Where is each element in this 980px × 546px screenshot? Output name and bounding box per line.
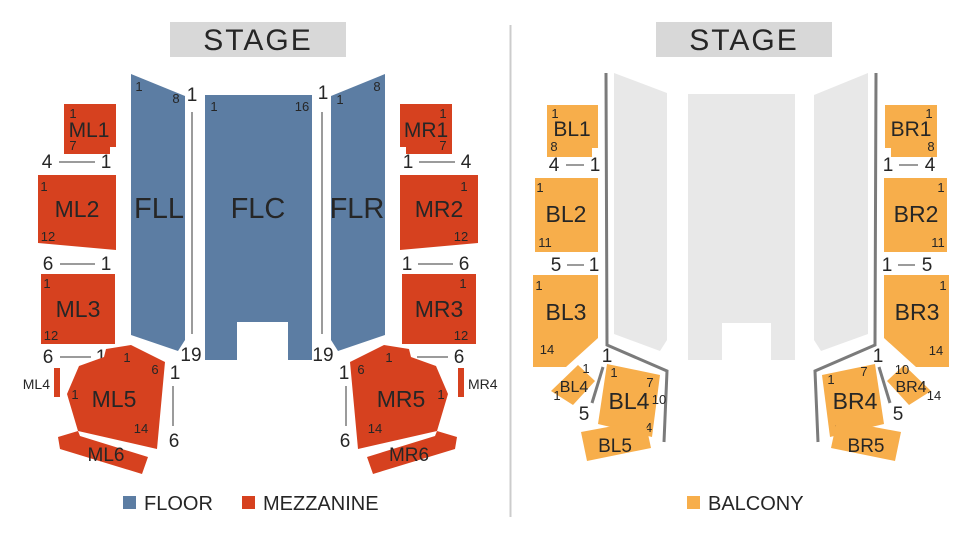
seat-map-canvas: STAGE FLL 1 8 FLC 1 16 FLR 1 8 1 19 (0, 0, 980, 546)
section-mr3-label: MR3 (415, 296, 464, 322)
mr2-seat-b: 6 (459, 254, 470, 275)
mr1-row-first: 1 (439, 106, 446, 121)
section-br1-label: BR1 (891, 118, 932, 141)
seat-range-br1: 1 4 (883, 155, 936, 176)
section-bl1-label: BL1 (553, 118, 590, 141)
seating-chart-page: STAGE FLL 1 8 FLC 1 16 FLR 1 8 1 19 (0, 0, 980, 546)
mr2-seat-a: 1 (402, 254, 413, 275)
mr5-num-right: 1 (437, 387, 444, 402)
ml1-row-first: 1 (69, 106, 76, 121)
mr5-num-top: 1 (385, 350, 392, 365)
section-ml4-label: ML4 (23, 376, 50, 392)
section-mr5[interactable]: MR5 1 6 1 14 (350, 345, 448, 449)
mr3-seat-b: 6 (454, 347, 465, 368)
seat-range-bl1: 4 1 (549, 155, 601, 176)
ml1-seat-b: 1 (101, 152, 112, 173)
bl3-row-first: 1 (535, 278, 542, 293)
section-bl4-small[interactable]: BL4 1 1 5 (551, 361, 595, 425)
ml1-row-last: 7 (69, 138, 76, 153)
section-bl5[interactable]: BL5 (581, 420, 651, 461)
bl2-seat-b: 1 (589, 255, 600, 276)
br4s-num-top: 10 (895, 362, 909, 377)
bl2-row-last: 11 (538, 235, 552, 250)
ml2-seat-a: 6 (43, 254, 54, 275)
fll-row-first: 1 (135, 79, 142, 94)
br1-row-first: 1 (925, 106, 932, 121)
aisle-mr5-top-num: 1 (339, 363, 350, 384)
aisle-left-top-num: 1 (187, 85, 198, 106)
section-br5[interactable]: BR5 (831, 420, 901, 461)
aisle-left-bottom-num: 19 (180, 345, 201, 366)
section-flc-label: FLC (231, 193, 286, 225)
balcony-rail-br4 (879, 367, 890, 403)
legend-floor-label: FLOOR (144, 493, 213, 515)
aisle-ml5-top-num: 1 (170, 363, 181, 384)
legend-mezzanine-label: MEZZANINE (263, 493, 379, 515)
section-br2-label: BR2 (894, 201, 939, 227)
flr-row-first: 1 (336, 92, 343, 107)
section-flr[interactable]: FLR 1 8 (330, 74, 385, 351)
section-br4-small[interactable]: BR4 10 14 5 (887, 362, 941, 425)
flc-row-first: 1 (210, 99, 217, 114)
section-bl4-label: BL4 (609, 388, 650, 414)
ml3-row-first: 1 (43, 276, 50, 291)
mr3-row-last: 12 (454, 328, 468, 343)
section-br4-small-label: BR4 (895, 379, 926, 396)
section-mr2[interactable]: MR2 1 12 (400, 175, 478, 250)
ghost-flc-shape (688, 94, 795, 360)
br4-num-tr: 7 (860, 364, 867, 379)
section-ml4[interactable]: ML4 (23, 368, 60, 397)
section-bl1[interactable]: BL1 1 8 (547, 105, 598, 157)
seat-range-ml1: 4 1 (42, 152, 112, 173)
aisle-mr5-bottom-num: 6 (340, 431, 351, 452)
br2-seat-b: 5 (922, 255, 933, 276)
legend-floor-mezzanine: FLOOR MEZZANINE (123, 493, 379, 515)
ml3-row-last: 12 (44, 328, 58, 343)
ghost-fll-shape (614, 73, 667, 351)
stage-left: STAGE (170, 22, 346, 57)
mr2-row-first: 1 (460, 179, 467, 194)
section-bl2[interactable]: BL2 1 11 (535, 178, 598, 252)
ml5-num-tr: 6 (151, 362, 158, 377)
bl4s-num-left: 1 (553, 388, 560, 403)
seat-range-br2: 1 5 (882, 255, 933, 276)
mr1-row-last: 7 (439, 138, 446, 153)
br2-row-last: 11 (931, 235, 945, 250)
balcony-rail-bl4 (592, 367, 603, 403)
section-ml5-label: ML5 (92, 386, 137, 412)
br4s-num-right: 14 (927, 388, 941, 403)
section-flr-label: FLR (330, 193, 385, 225)
section-br3[interactable]: BR3 1 14 (884, 275, 949, 367)
ml2-row-first: 1 (40, 179, 47, 194)
mr5-num-bottom: 14 (368, 421, 382, 436)
stage-right: STAGE (656, 22, 832, 57)
bl2-row-first: 1 (536, 180, 543, 195)
section-ml2-label: ML2 (55, 196, 100, 222)
flc-row-last: 16 (295, 99, 309, 114)
section-bl3[interactable]: BL3 1 14 (533, 275, 598, 367)
bl4-num-right: 10 (652, 392, 666, 407)
aisle-mr5-marker: 1 6 (339, 363, 351, 452)
ml1-seat-a: 4 (42, 152, 53, 173)
aisle-right-top-num: 1 (318, 83, 329, 104)
mr2-row-last: 12 (454, 229, 468, 244)
section-br2[interactable]: BR2 1 11 (884, 178, 947, 252)
aisle-ml5-marker: 1 6 (169, 363, 181, 452)
fll-row-last: 8 (172, 91, 179, 106)
section-mr4-shape[interactable] (458, 368, 464, 397)
section-ml5[interactable]: ML5 1 6 1 14 (67, 345, 165, 449)
br4s-num-below: 5 (893, 404, 904, 425)
section-flc-shape[interactable] (205, 95, 312, 360)
ml2-row-last: 12 (41, 229, 55, 244)
bl1-row-last: 8 (550, 139, 557, 154)
floor-mezzanine-map: STAGE FLL 1 8 FLC 1 16 FLR 1 8 1 19 (23, 22, 498, 515)
legend-balcony: BALCONY (687, 493, 804, 515)
legend-balcony-label: BALCONY (708, 493, 804, 515)
bl3-row-last: 14 (540, 342, 554, 357)
section-bl3-label: BL3 (546, 299, 587, 325)
br4-num-tl: 1 (827, 372, 834, 387)
mr3-row-first: 1 (459, 276, 466, 291)
section-mr4[interactable]: MR4 (458, 368, 498, 397)
br2-seat-a: 1 (882, 255, 893, 276)
section-br5-label: BR5 (848, 436, 885, 457)
seat-range-ml2: 6 1 (43, 254, 112, 275)
section-flc[interactable]: FLC 1 16 (205, 95, 312, 360)
section-fll[interactable]: FLL 1 8 (131, 74, 185, 351)
bl4-bend-num: 1 (602, 346, 613, 367)
bl1-row-first: 1 (551, 106, 558, 121)
section-mr2-label: MR2 (415, 196, 464, 222)
section-mr3[interactable]: MR3 1 12 (402, 274, 476, 344)
ml5-num-top: 1 (123, 350, 130, 365)
ghost-flr-shape (814, 73, 868, 351)
ml5-num-bottom: 14 (134, 421, 148, 436)
section-bl2-label: BL2 (546, 201, 587, 227)
section-mr5-label: MR5 (377, 386, 426, 412)
section-br4-label: BR4 (833, 388, 878, 414)
stage-label: STAGE (689, 24, 798, 57)
section-ml3-label: ML3 (56, 296, 101, 322)
bl1-seat-b: 1 (590, 155, 601, 176)
aisle-right-bottom-num: 19 (312, 345, 333, 366)
br3-row-last: 14 (929, 343, 943, 358)
br1-row-last: 8 (927, 139, 934, 154)
floor-swatch-icon (123, 496, 136, 509)
bl4-num-tr: 7 (646, 375, 653, 390)
section-ml2[interactable]: ML2 1 12 (38, 175, 116, 250)
bl4s-num-below: 5 (579, 404, 590, 425)
ml2-seat-b: 1 (101, 254, 112, 275)
section-bl5-label: BL5 (598, 436, 632, 457)
mr1-seat-b: 4 (461, 152, 472, 173)
section-mr4-label: MR4 (468, 376, 498, 392)
section-mr6-label: MR6 (389, 445, 429, 466)
section-fll-label: FLL (134, 193, 184, 225)
br1-seat-b: 4 (925, 155, 936, 176)
section-br3-label: BR3 (895, 299, 940, 325)
section-mr1[interactable]: MR1 1 7 (400, 104, 452, 154)
balcony-map: STAGE BL1 1 8 4 1 BL2 1 11 (533, 22, 949, 515)
flr-row-last: 8 (373, 79, 380, 94)
br1-seat-a: 1 (883, 155, 894, 176)
balcony-swatch-icon (687, 496, 700, 509)
br4-bend-num: 1 (873, 346, 884, 367)
section-ml4-shape[interactable] (54, 368, 60, 397)
seat-range-mr1: 1 4 (403, 152, 472, 173)
bl4-num-tl: 1 (610, 365, 617, 380)
mr5-num-tl: 6 (357, 362, 364, 377)
mr1-seat-a: 1 (403, 152, 414, 173)
bl4s-num-top: 1 (582, 361, 589, 376)
ml5-num-left: 1 (71, 387, 78, 402)
br3-row-first: 1 (939, 278, 946, 293)
section-bl4-small-label: BL4 (560, 379, 589, 396)
section-br1[interactable]: BR1 1 8 (885, 105, 937, 157)
mezzanine-swatch-icon (242, 496, 255, 509)
bl2-seat-a: 5 (551, 255, 562, 276)
br2-row-first: 1 (937, 180, 944, 195)
ml3-seat-a: 6 (43, 347, 54, 368)
section-ml1[interactable]: ML1 1 7 (64, 104, 116, 154)
section-ml6-label: ML6 (88, 445, 125, 466)
seat-range-mr2: 1 6 (402, 254, 470, 275)
bl1-seat-a: 4 (549, 155, 560, 176)
aisle-ml5-bottom-num: 6 (169, 431, 180, 452)
seat-range-bl2: 5 1 (551, 255, 600, 276)
section-ml3[interactable]: ML3 1 12 (41, 274, 115, 344)
stage-label: STAGE (203, 24, 312, 57)
